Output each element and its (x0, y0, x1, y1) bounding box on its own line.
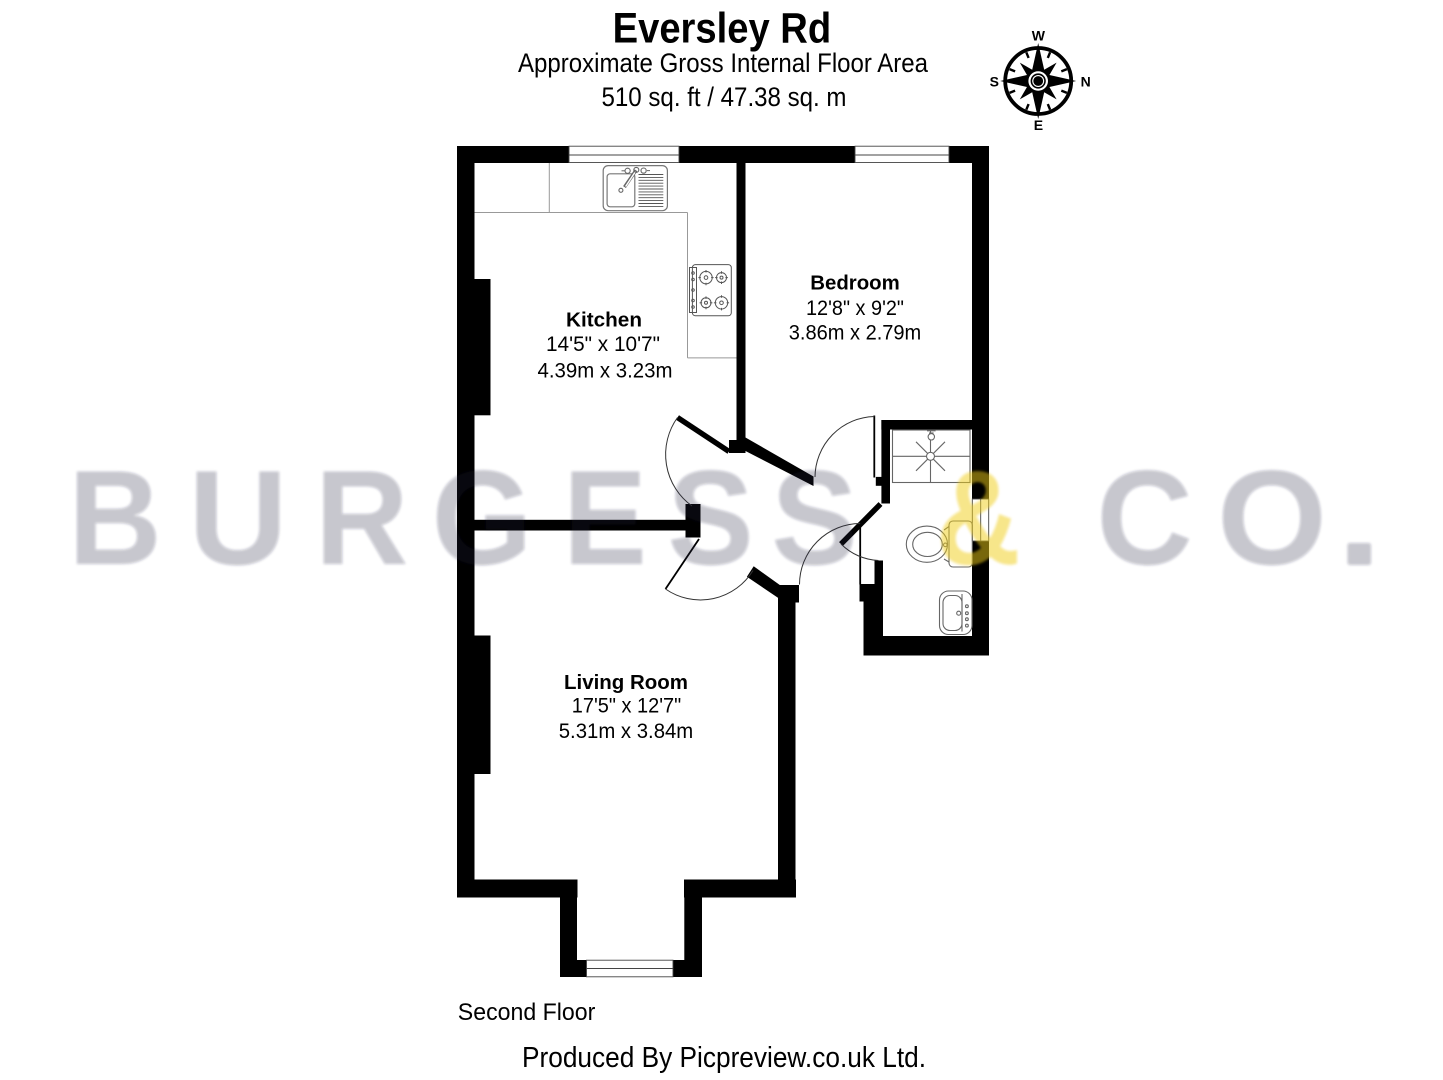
svg-text:Eversley Rd: Eversley Rd (613, 5, 832, 53)
svg-text:E: E (1034, 117, 1043, 133)
svg-text:5.31m x 3.84m: 5.31m x 3.84m (559, 720, 694, 743)
svg-text:Second Floor: Second Floor (458, 999, 596, 1026)
svg-text:W: W (1032, 28, 1046, 44)
svg-text:4.39m x 3.23m: 4.39m x 3.23m (538, 360, 673, 383)
svg-text:N: N (1081, 74, 1091, 90)
svg-text:O: O (1217, 443, 1327, 593)
svg-text:S: S (771, 443, 857, 593)
svg-text:&: & (936, 442, 1020, 592)
svg-text:S: S (668, 443, 754, 593)
svg-text:G: G (432, 443, 532, 593)
svg-text:Kitchen: Kitchen (566, 308, 642, 331)
svg-text:3.86m x 2.79m: 3.86m x 2.79m (789, 321, 922, 344)
svg-text:Produced By Picpreview.co.uk L: Produced By Picpreview.co.uk Ltd. (522, 1042, 926, 1074)
svg-text:C: C (1096, 443, 1192, 593)
svg-text:S: S (990, 74, 999, 90)
svg-text:Approximate Gross Internal Flo: Approximate Gross Internal Floor Area (518, 48, 929, 78)
svg-text:12'8" x 9'2": 12'8" x 9'2" (806, 297, 904, 320)
svg-text:Living Room: Living Room (564, 671, 688, 694)
svg-text:R: R (315, 443, 408, 593)
svg-text:U: U (188, 442, 287, 592)
svg-text:B: B (68, 443, 161, 593)
svg-text:E: E (563, 442, 646, 593)
svg-text:510 sq. ft / 47.38 sq. m: 510 sq. ft / 47.38 sq. m (602, 82, 847, 112)
svg-text:17'5" x 12'7": 17'5" x 12'7" (572, 694, 682, 717)
svg-text:Bedroom: Bedroom (810, 271, 900, 294)
svg-text:14'5" x 10'7": 14'5" x 10'7" (546, 333, 660, 356)
